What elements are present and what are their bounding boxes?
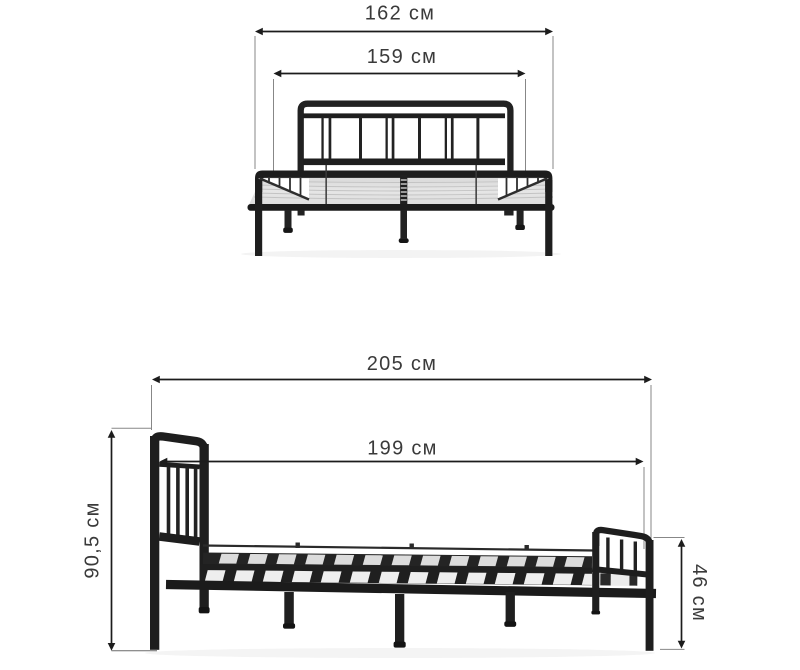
svg-text:46 см: 46 см bbox=[688, 564, 710, 622]
svg-text:90,5 см: 90,5 см bbox=[82, 501, 104, 578]
svg-text:162 см: 162 см bbox=[365, 3, 435, 25]
svg-text:199 см: 199 см bbox=[367, 438, 437, 460]
svg-text:159 см: 159 см bbox=[367, 46, 437, 68]
svg-text:205 см: 205 см bbox=[367, 353, 437, 375]
